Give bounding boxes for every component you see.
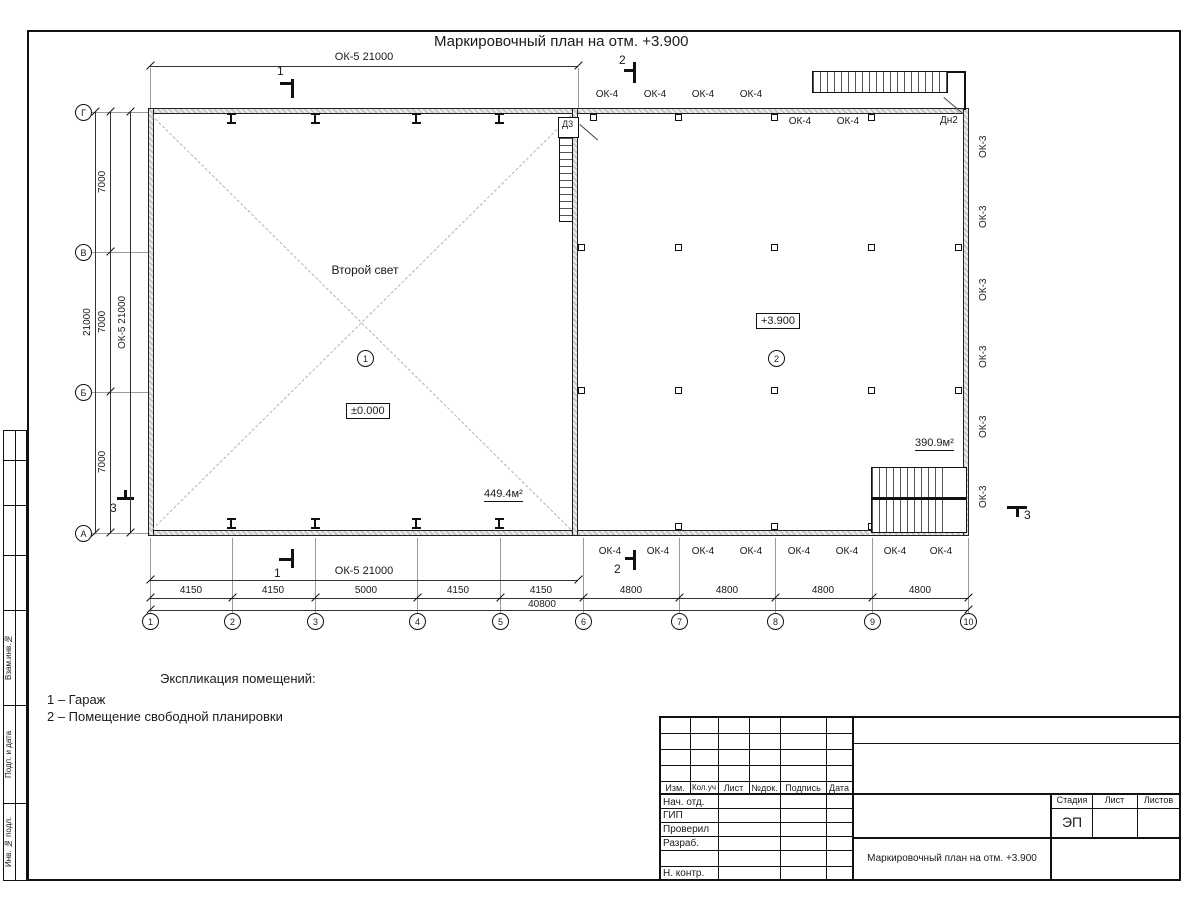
column-square <box>868 387 875 394</box>
door-d3-label: Д3 <box>562 119 573 129</box>
window-label-ok3: ОК-3 <box>978 341 989 373</box>
room2-area: 390.9м² <box>915 437 954 451</box>
tb-row-label: Н. контр. <box>663 868 704 879</box>
legend-item: 1 – Гараж <box>47 692 105 707</box>
dim-label-7000: 7000 <box>97 442 108 482</box>
dim-span: 4150 <box>521 585 561 596</box>
tb-stage-label: Стадия <box>1052 795 1092 805</box>
extension-line <box>91 252 148 253</box>
tb-col-header: Дата <box>826 783 852 793</box>
side-stamp-label: Подп. и дата <box>4 708 13 800</box>
window-label-ok4: ОК-4 <box>587 89 627 100</box>
grid-bubble-number: 1 <box>142 613 159 630</box>
window-label-ok4: ОК-4 <box>590 546 630 557</box>
tb-line <box>854 743 1181 744</box>
tb-col-header: №док. <box>749 783 780 793</box>
grid-bubble-number: 5 <box>492 613 509 630</box>
dim-span: 4800 <box>611 585 651 596</box>
column-ibeam <box>227 518 236 529</box>
window-label-ok4: ОК-4 <box>779 546 819 557</box>
stair-flight-lower <box>872 500 948 532</box>
window-label-ok4: ОК-4 <box>921 546 961 557</box>
tb-line <box>1050 793 1052 881</box>
grid-bubble-number: 9 <box>864 613 881 630</box>
window-label-ok4: ОК-4 <box>875 546 915 557</box>
extension-line <box>91 112 148 113</box>
room2-elevation: +3.900 <box>756 313 800 329</box>
dim-span: 4150 <box>253 585 293 596</box>
extension-line <box>500 538 501 616</box>
tb-line <box>854 837 1181 839</box>
window-label-ok4: ОК-4 <box>731 546 771 557</box>
tb-line <box>661 836 852 837</box>
dim-label-ok5-bottom: ОК-5 21000 <box>314 565 414 577</box>
stair-mid-landing <box>872 497 966 500</box>
dim-label-7000: 7000 <box>97 162 108 202</box>
dim-label-left-total: 21000 <box>82 292 93 352</box>
tb-sheet-label: Лист <box>1092 795 1137 805</box>
tb-line <box>661 850 852 851</box>
dim-span: 4150 <box>438 585 478 596</box>
side-strip-line <box>3 460 27 461</box>
wall-bottom <box>148 530 969 536</box>
dim-span: 5000 <box>346 585 386 596</box>
tb-col-header: Лист <box>718 783 749 793</box>
drawing-sheet: Взам.инв.№ Подп. и дата Инв. № подл. Мар… <box>0 0 1200 900</box>
tb-line <box>661 822 852 823</box>
tb-col-header: Изм. <box>660 783 690 793</box>
room1-name: Второй свет <box>325 263 405 277</box>
grid-bubble-letter: В <box>75 244 92 261</box>
tb-line <box>1052 808 1181 809</box>
column-square <box>578 387 585 394</box>
section-mark-3-label: 3 <box>1024 508 1031 522</box>
extension-line <box>150 68 151 108</box>
room1-elevation: ±0.000 <box>346 403 390 419</box>
window-label-ok3: ОК-3 <box>978 131 989 163</box>
tb-row-label: Проверил <box>663 824 709 835</box>
column-square <box>771 244 778 251</box>
side-strip-line <box>3 555 27 556</box>
extension-line <box>968 538 969 616</box>
window-label-ok4: ОК-4 <box>827 546 867 557</box>
column-ibeam <box>227 113 236 124</box>
column-ibeam <box>311 113 320 124</box>
room1-number: 1 <box>357 350 374 367</box>
dim-line <box>95 112 96 533</box>
extension-line <box>583 538 584 616</box>
section-mark-1-label: 1 <box>274 566 281 580</box>
window-label-ok3: ОК-3 <box>978 481 989 513</box>
room2-number: 2 <box>768 350 785 367</box>
stair-landing-wall <box>964 71 966 110</box>
dim-label-7000: 7000 <box>97 302 108 342</box>
tb-col-header: Кол.уч <box>690 783 718 792</box>
column-square <box>771 523 778 530</box>
extension-line <box>417 538 418 616</box>
window-label-ok4: ОК-4 <box>780 116 820 127</box>
tb-line <box>852 716 854 881</box>
tb-col-header: Подпись <box>780 783 826 793</box>
grid-bubble-number: 8 <box>767 613 784 630</box>
column-square <box>675 244 682 251</box>
tb-doc-title: Маркировочный план на отм. +3.900 <box>856 853 1048 864</box>
grid-bubble-number: 10 <box>960 613 977 630</box>
dim-label-total: 40800 <box>512 599 572 610</box>
column-ibeam <box>495 113 504 124</box>
tb-row-label: Разраб. <box>663 838 699 849</box>
side-strip-line <box>3 705 27 706</box>
column-square <box>590 114 597 121</box>
extension-line <box>91 533 148 534</box>
column-square <box>955 244 962 251</box>
tb-stage-value: ЭП <box>1052 814 1092 830</box>
dim-label-ok5-top: ОК-5 21000 <box>314 51 414 63</box>
room1-area: 449.4м² <box>484 488 523 502</box>
window-label-ok4: ОК-4 <box>638 546 678 557</box>
section-mark <box>291 79 294 98</box>
grid-bubble-number: 6 <box>575 613 592 630</box>
extension-line <box>578 68 579 108</box>
column-square <box>955 387 962 394</box>
grid-bubble-number: 4 <box>409 613 426 630</box>
dim-span: 4800 <box>900 585 940 596</box>
side-strip-line <box>3 505 27 506</box>
section-mark <box>1016 508 1019 517</box>
extension-line <box>775 538 776 616</box>
dim-span: 4150 <box>171 585 211 596</box>
section-mark <box>633 62 636 83</box>
column-square <box>675 114 682 121</box>
dim-line <box>110 112 111 533</box>
wall-left <box>148 108 154 536</box>
section-mark <box>633 550 636 570</box>
tb-row-label: Нач. отд. <box>663 797 705 808</box>
window-label-ok4: ОК-4 <box>635 89 675 100</box>
section-mark <box>124 490 127 498</box>
grid-bubble-number: 3 <box>307 613 324 630</box>
dim-span: 4800 <box>803 585 843 596</box>
section-mark-2-label: 2 <box>614 562 621 576</box>
grid-bubble-letter: Б <box>75 384 92 401</box>
window-label-ok4: ОК-4 <box>683 89 723 100</box>
exterior-stair <box>812 71 948 93</box>
tb-sheets-label: Листов <box>1137 795 1180 805</box>
legend-header: Экспликация помещений: <box>160 671 316 686</box>
dim-line <box>150 610 968 611</box>
extension-line <box>872 538 873 616</box>
side-strip-line <box>3 610 27 611</box>
dim-line <box>150 580 578 581</box>
column-ibeam <box>495 518 504 529</box>
window-label-ok4: ОК-4 <box>828 116 868 127</box>
section-mark-1-label: 1 <box>277 64 284 78</box>
section-mark-3-label: 3 <box>110 501 117 515</box>
window-label-ok3: ОК-3 <box>978 411 989 443</box>
tb-line <box>661 808 852 809</box>
tb-line <box>780 717 781 880</box>
window-label-ok4: ОК-4 <box>683 546 723 557</box>
tb-line <box>826 717 827 880</box>
grid-bubble-number: 7 <box>671 613 688 630</box>
column-square <box>771 114 778 121</box>
side-stamp-label: Инв. № подл. <box>4 806 13 878</box>
window-label-ok3: ОК-3 <box>978 274 989 306</box>
extension-line <box>232 538 233 616</box>
interior-ladder <box>559 137 573 222</box>
dim-line <box>150 66 578 67</box>
column-square <box>868 114 875 121</box>
side-stamp-label: Взам.инв.№ <box>4 612 13 702</box>
window-label-ok3: ОК-3 <box>978 201 989 233</box>
extension-line <box>91 392 148 393</box>
dim-line <box>130 112 131 533</box>
column-square <box>578 244 585 251</box>
extension-line <box>315 538 316 616</box>
side-strip-line <box>3 803 27 804</box>
side-strip-line <box>15 430 16 881</box>
tb-line <box>661 866 852 867</box>
door-d3-box: Д3 <box>558 117 579 138</box>
dim-label-ok5-left: ОК-5 21000 <box>117 282 128 362</box>
column-square <box>675 387 682 394</box>
column-ibeam <box>412 518 421 529</box>
window-label-ok4: ОК-4 <box>731 89 771 100</box>
column-ibeam <box>311 518 320 529</box>
extension-line <box>679 538 680 616</box>
column-square <box>868 244 875 251</box>
column-square <box>675 523 682 530</box>
tb-line <box>718 717 719 880</box>
section-mark-2-label: 2 <box>619 53 626 67</box>
drawing-title: Маркировочный план на отм. +3.900 <box>434 33 674 50</box>
column-ibeam <box>412 113 421 124</box>
wall-top <box>148 108 969 114</box>
column-square <box>771 387 778 394</box>
stair-flight-upper <box>872 468 948 497</box>
legend-item: 2 – Помещение свободной планировки <box>47 709 283 724</box>
door-dn2-label: Дн2 <box>940 115 958 126</box>
section-mark <box>291 549 294 568</box>
tb-row-label: ГИП <box>663 810 683 821</box>
dim-span: 4800 <box>707 585 747 596</box>
grid-bubble-number: 2 <box>224 613 241 630</box>
grid-bubble-letter: А <box>75 525 92 542</box>
grid-bubble-letter: Г <box>75 104 92 121</box>
